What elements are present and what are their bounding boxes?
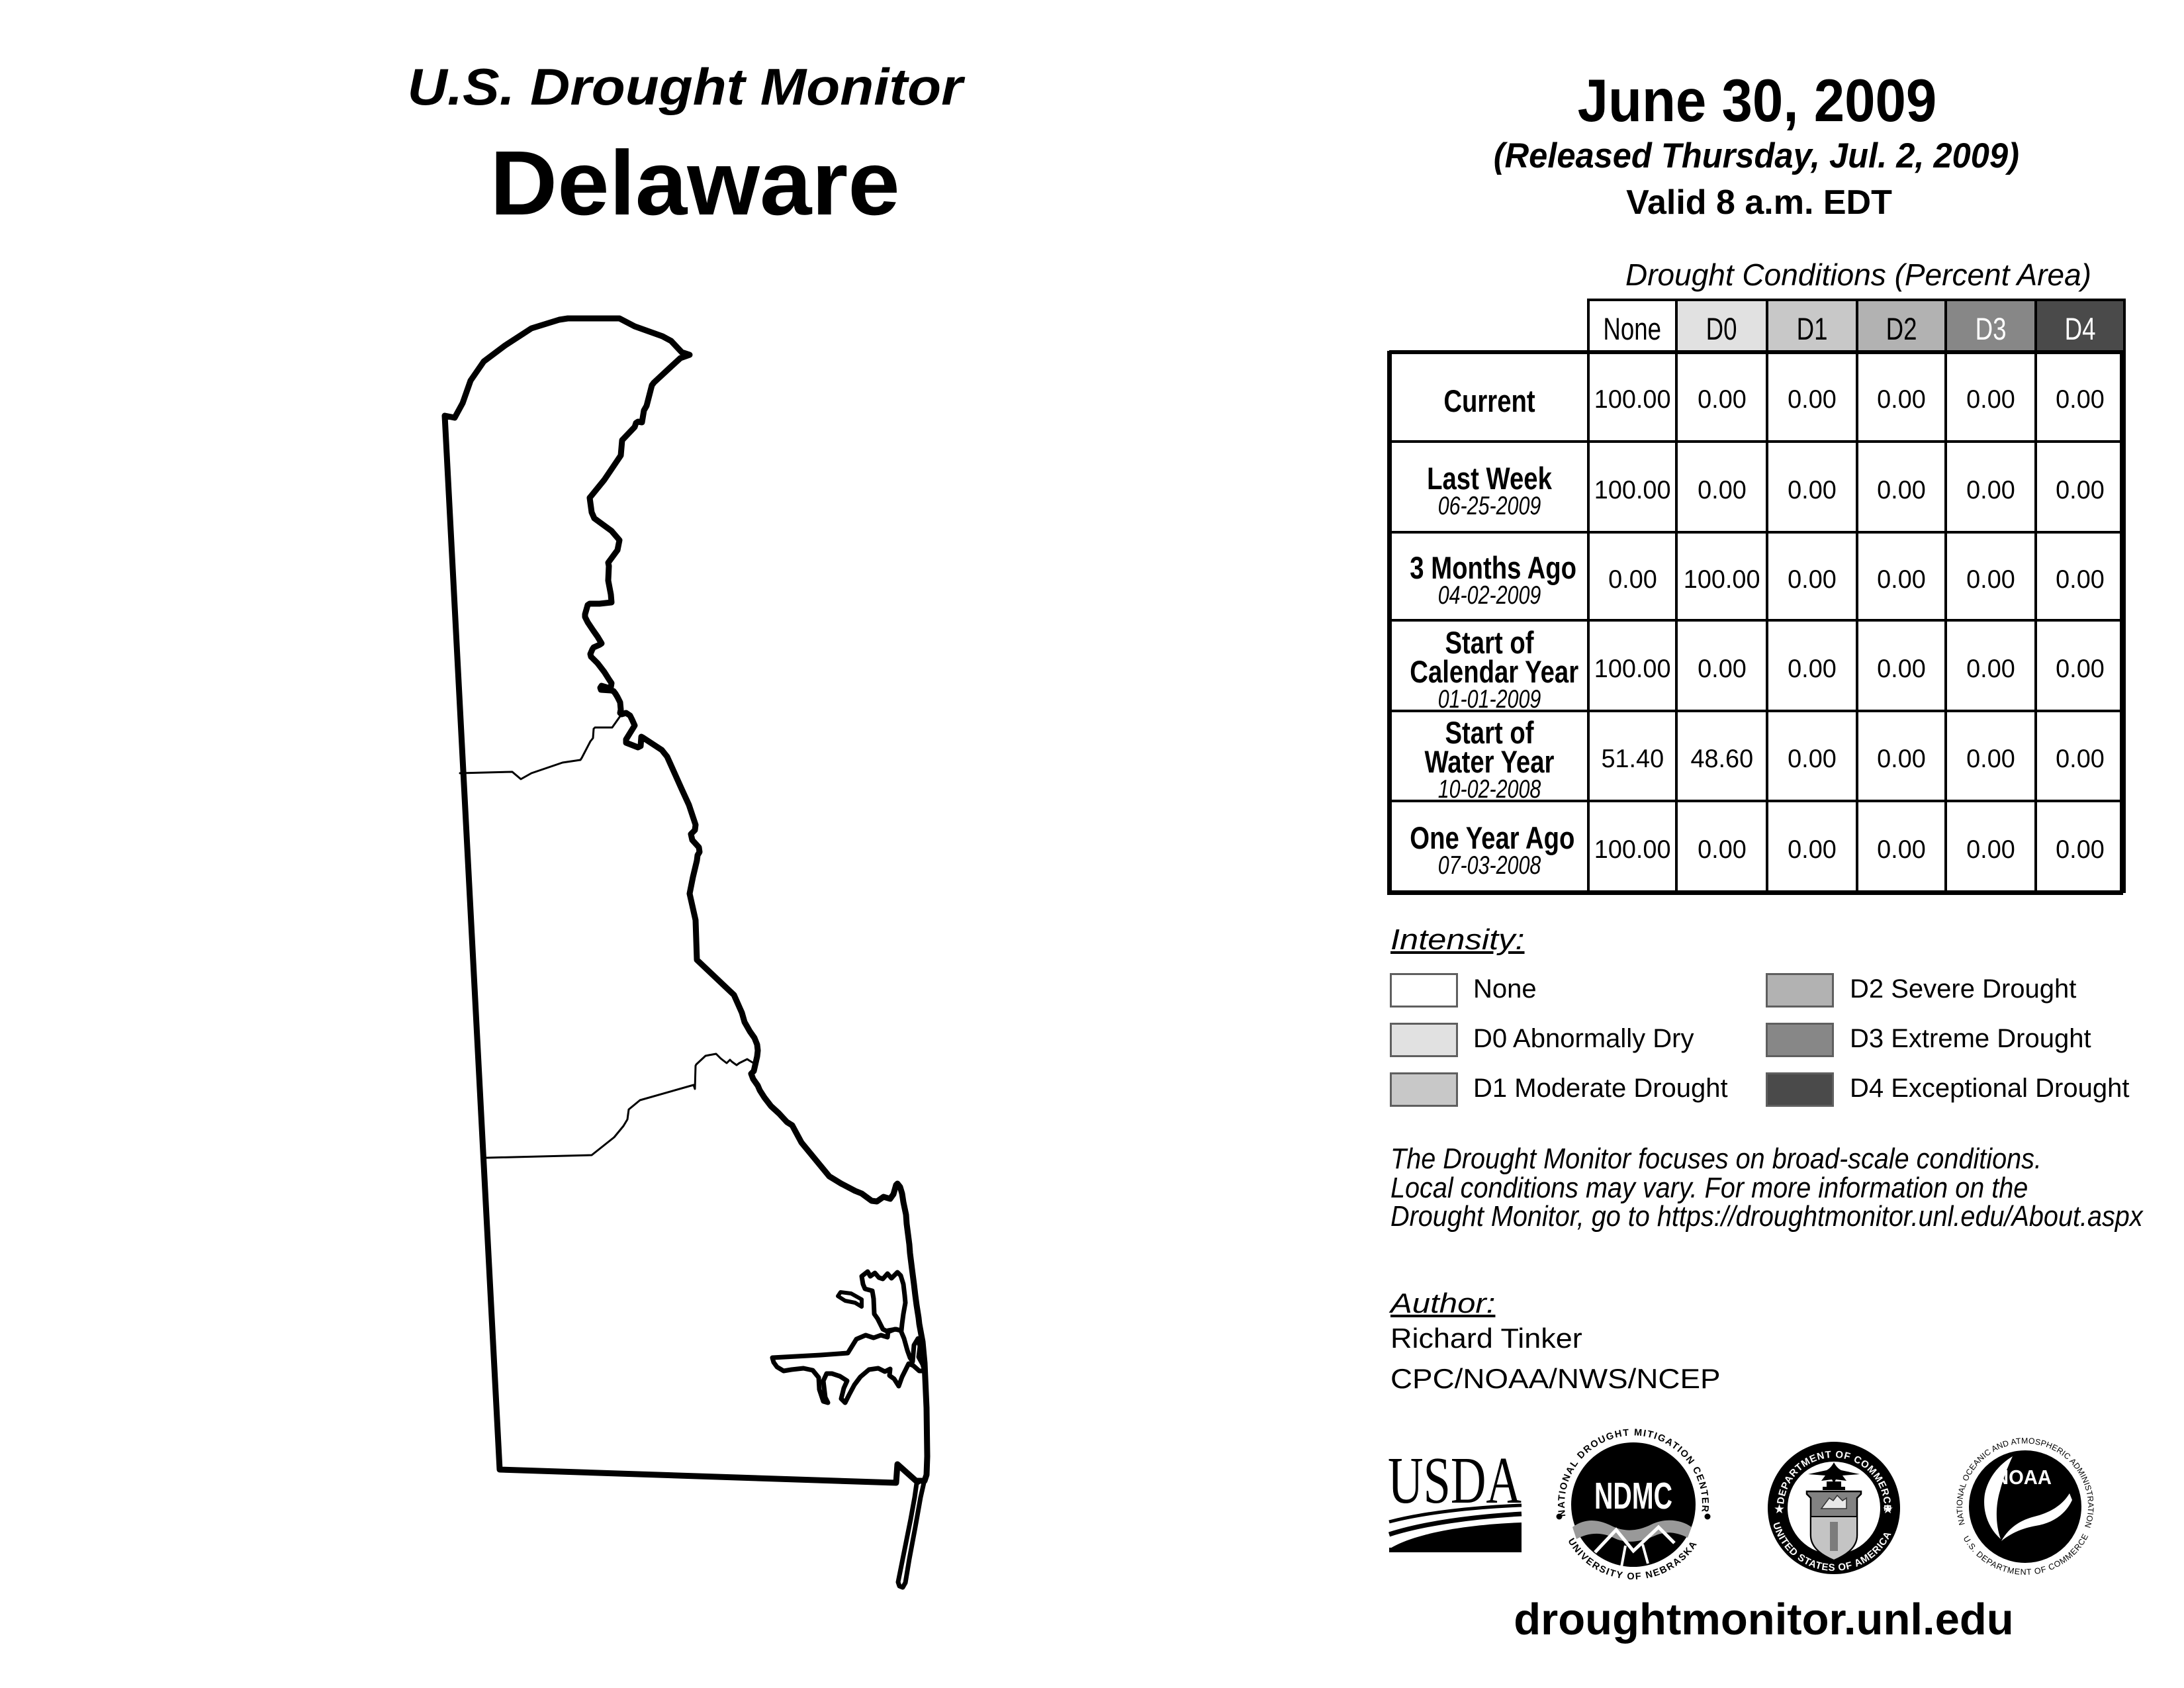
svg-text:NOAA: NOAA xyxy=(1995,1466,2052,1489)
svg-text:★: ★ xyxy=(1882,1503,1893,1517)
svg-text:NDMC: NDMC xyxy=(1594,1475,1672,1517)
svg-text:★: ★ xyxy=(1774,1503,1785,1517)
